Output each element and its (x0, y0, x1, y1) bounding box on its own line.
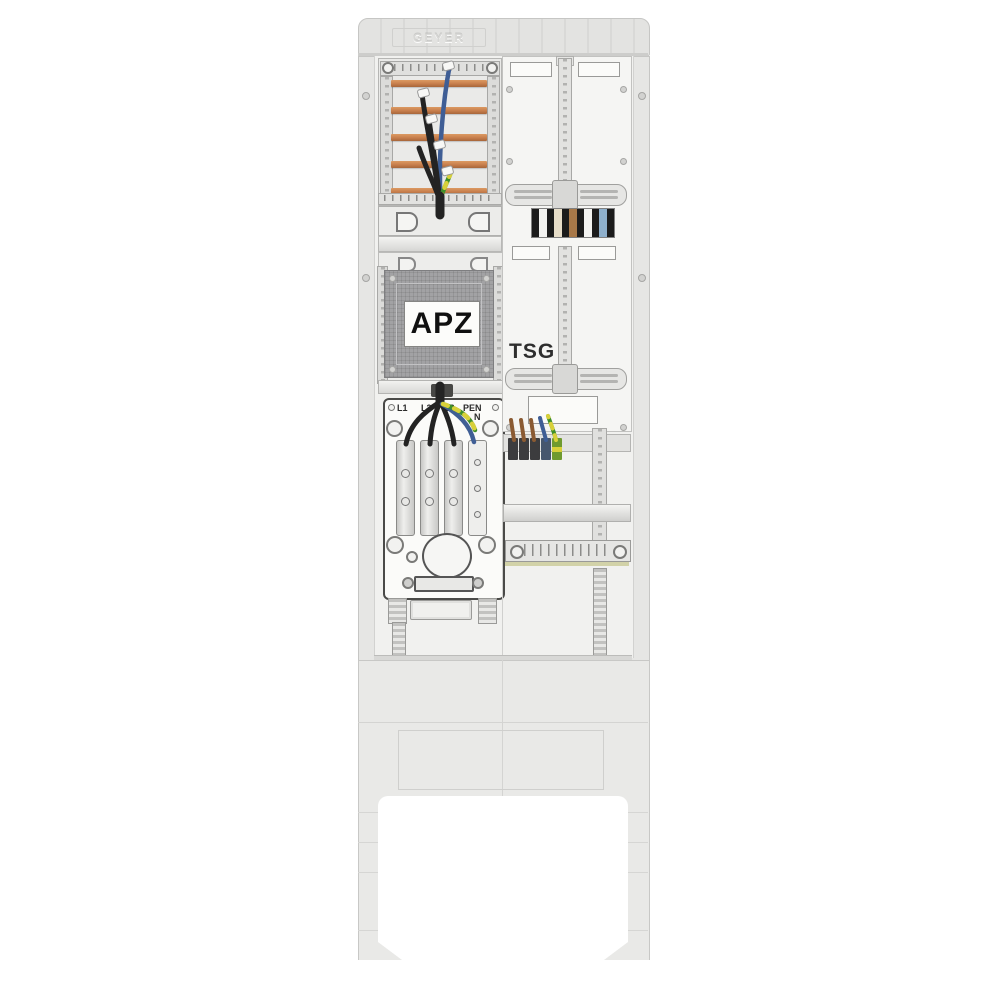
baseplate-hole-left (386, 536, 404, 554)
bracket-joint-lower (552, 364, 578, 394)
legs-cutout (378, 796, 628, 960)
field-screw (506, 158, 513, 165)
tsg-label-text: TSG (509, 340, 555, 364)
terminal-hole-right (482, 420, 499, 437)
busbar-top-ticks (394, 64, 484, 71)
color-segment (592, 209, 599, 237)
terminal-label-l1: L1 (397, 403, 408, 413)
leg-seam (358, 812, 378, 813)
apz-panel-screw (389, 275, 396, 282)
cable-gland-right (478, 598, 497, 624)
pen-bar (468, 440, 487, 536)
meter-cutout (578, 246, 616, 260)
bracket-slot (580, 380, 618, 383)
meter-stripe-block (531, 208, 615, 238)
copper-busbar-3 (391, 134, 487, 141)
meter-cutout (578, 62, 620, 77)
fuse-base-l2 (420, 440, 439, 536)
fuse-dot (425, 469, 434, 478)
field-screw (620, 86, 627, 93)
fuse-base-l1 (396, 440, 415, 536)
d-cutout-right (468, 212, 490, 232)
brand-logo-text: GEYER (413, 31, 465, 45)
meter-pillar-product-photo: GEYER APZ L1 L2 L3 PEN N (0, 0, 1000, 1000)
apz-panel-screw (389, 366, 396, 373)
apz-label-text: APZ (411, 307, 474, 341)
cable-gland-left (388, 598, 407, 624)
fuse-dot (449, 497, 458, 506)
brand-logo-plate: GEYER (392, 28, 486, 47)
din-terminal-blocks (508, 438, 562, 460)
terminal-box-screw (492, 404, 499, 411)
fuse-dot (425, 497, 434, 506)
fuse-dot (401, 469, 410, 478)
bracket-slot (580, 374, 618, 377)
baseplate-oval-cutout (422, 533, 472, 579)
meter-rail-vertical-lower (558, 246, 572, 380)
bracket-slot (514, 190, 552, 193)
busbar-screw-left (382, 62, 394, 74)
field-screw (620, 158, 627, 165)
baseplate-hole-right (478, 536, 496, 554)
wall-screw (638, 92, 646, 100)
horizontal-rail-lower (503, 504, 631, 522)
busbar-screw-right (486, 62, 498, 74)
terminal-label-l3: L3 (444, 403, 455, 413)
clamp-bolt-right (472, 577, 484, 589)
leg-seam (628, 930, 648, 931)
bracket-slot (514, 380, 552, 383)
pen-dot (474, 459, 481, 466)
leg-seam (358, 872, 378, 873)
fuse-dot (449, 469, 458, 478)
color-segment (547, 209, 554, 237)
color-segment (562, 209, 569, 237)
threaded-rod-right (593, 568, 607, 660)
pen-dot (474, 485, 481, 492)
bracket-slot (580, 190, 618, 193)
meter-cutout (512, 246, 550, 260)
bracket-slot (514, 374, 552, 377)
meter-rail-vertical-upper (558, 58, 572, 196)
apz-panel-screw (483, 366, 490, 373)
apz-panel-screw (483, 275, 490, 282)
tick-strip-screw-right (613, 545, 627, 559)
terminal-label-l2: L2 (421, 403, 432, 413)
d-cutout-left (396, 212, 418, 232)
terminal-box-screw (388, 404, 395, 411)
clamp-bolt-left (402, 577, 414, 589)
color-segment (530, 438, 540, 460)
wall-screw (362, 274, 370, 282)
apz-label-plate: APZ (404, 301, 480, 347)
meter-cutout (510, 62, 552, 77)
color-segment (539, 209, 546, 237)
color-segment (569, 209, 576, 237)
color-segment (554, 209, 561, 237)
base-inset-rect (398, 730, 604, 790)
pen-dot (474, 511, 481, 518)
color-segment (577, 209, 584, 237)
copper-busbar-2 (391, 107, 487, 114)
wall-screw (362, 92, 370, 100)
leg-seam (358, 842, 378, 843)
wall-screw (638, 274, 646, 282)
color-segment (541, 438, 551, 460)
field-screw (506, 86, 513, 93)
leg-seam (628, 872, 648, 873)
cable-clamp (431, 384, 453, 397)
color-segment (508, 438, 518, 460)
bracket-joint-upper (552, 180, 578, 210)
tsg-window (528, 396, 598, 424)
color-segment (552, 438, 562, 460)
gland-center-plate (410, 600, 472, 620)
busbar-rail-right (487, 76, 500, 200)
fuse-dot (401, 497, 410, 506)
clamp-bar (414, 576, 474, 592)
copper-busbar-1 (391, 80, 487, 87)
terminal-label-n: N (474, 412, 481, 422)
color-segment (607, 209, 614, 237)
tick-strip-screw-left (510, 545, 524, 559)
accent-line (505, 562, 629, 566)
base-horizontal-seam (358, 722, 648, 723)
leg-seam (628, 842, 648, 843)
leg-seam (628, 812, 648, 813)
fuse-base-l3 (444, 440, 463, 536)
baseplate-screw-left (406, 551, 418, 563)
terminal-tick-marks (524, 544, 610, 556)
terminal-hole-left (386, 420, 403, 437)
leg-seam (358, 930, 378, 931)
color-segment (532, 209, 539, 237)
bracket-slot (514, 196, 552, 199)
color-segment (599, 209, 606, 237)
tick-rail-marks (384, 195, 494, 201)
copper-busbar-4 (391, 161, 487, 168)
plain-rail (378, 236, 502, 252)
bracket-slot (580, 196, 618, 199)
color-segment (519, 438, 529, 460)
color-segment (584, 209, 591, 237)
